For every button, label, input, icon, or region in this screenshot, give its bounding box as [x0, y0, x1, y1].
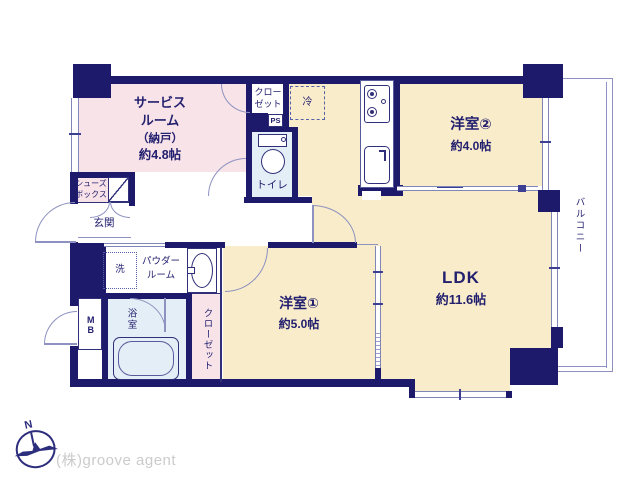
window-western2-right — [542, 98, 549, 190]
slider-western1-pocket — [376, 333, 380, 366]
fridge-label: 冷 — [290, 96, 325, 110]
toilet-label: トイレ — [252, 178, 292, 193]
wall-kitchen-right — [394, 80, 400, 188]
agency-watermark: (株)groove agent — [56, 449, 176, 470]
pillar-right-mid — [538, 190, 560, 212]
slider-western2-stop — [518, 185, 526, 192]
balcony-line-top — [556, 78, 613, 79]
window-service-left-tick — [69, 133, 81, 135]
wall-ps-filler — [252, 113, 268, 127]
washer-label: 洗 — [103, 263, 137, 276]
bath-label: 浴室 — [124, 304, 137, 334]
stove-burner-2-center — [370, 110, 374, 114]
wall-bath-left — [102, 298, 108, 382]
wall-bottom-window-end — [506, 391, 512, 398]
service-room-line1: サービス — [95, 94, 225, 112]
stove-burner-1-center — [370, 92, 374, 96]
bathtub-inner — [118, 341, 174, 376]
slider-western2-ldk — [397, 186, 538, 191]
balcony-line-bottom-inner — [558, 366, 607, 367]
shoebox-line1: シューズ — [72, 179, 110, 190]
balcony-line-right-outer — [612, 78, 613, 372]
ldk-door-leaf — [312, 205, 314, 243]
slider-powder-entry — [104, 243, 165, 247]
slider-western2-overlap — [437, 187, 463, 188]
entrance-label: 玄関 — [84, 216, 124, 231]
closet-lower-label: クローゼット — [200, 300, 213, 378]
entrance-door-arc — [35, 202, 75, 242]
window-ldk-right — [551, 212, 558, 327]
slider-western1-tick2 — [373, 303, 383, 305]
wall-bath-top — [100, 293, 192, 299]
wall-bath-right — [186, 293, 192, 382]
wall-top — [73, 76, 563, 84]
wall-counter-notch — [362, 191, 381, 200]
closet-lower-top-line — [192, 293, 220, 294]
western1-size: 約5.0帖 — [239, 316, 359, 333]
room-ldk-rightstrip — [538, 212, 551, 348]
service-room-line2: ルーム — [95, 112, 225, 130]
western2-label: 洋室② 約4.0帖 — [410, 115, 532, 155]
balcony-line-right-inner — [606, 82, 607, 368]
kitchen-sink — [364, 146, 390, 184]
window-ldk-right-tick — [549, 267, 560, 269]
powder-room-line2: ルーム — [133, 269, 189, 283]
wall-toilet-bottom — [244, 197, 312, 203]
meterbox-door-leaf — [44, 343, 77, 345]
floor-plan: バルコニー — [0, 0, 640, 480]
window-service-left — [71, 98, 79, 172]
wall-closet-lower-right — [220, 247, 222, 382]
entrance-door-leaf — [35, 241, 76, 243]
pillar-top-right — [523, 64, 563, 98]
slider-western1-tick1 — [373, 271, 383, 273]
wall-toilet-right — [292, 127, 298, 203]
compass-north-label: N — [23, 418, 33, 431]
shoebox-label: シューズ ボックス — [72, 179, 110, 201]
powder-room-label: パウダー ルーム — [133, 255, 189, 284]
service-room-size: 約4.8帖 — [95, 147, 225, 165]
closet-upper-line2: ゼット — [249, 99, 287, 111]
shoe-box-cabinet — [108, 177, 129, 202]
balcony-label: バルコニー — [572, 197, 585, 255]
ldk-name: LDK — [395, 266, 527, 290]
kitchen-faucet-stem — [384, 150, 386, 161]
window-ldk-bottom-tick — [459, 389, 461, 400]
ldk-size: 約11.6帖 — [395, 291, 527, 309]
pillar-bottom-right — [510, 348, 558, 385]
western1-label: 洋室① 約5.0帖 — [239, 294, 359, 333]
service-room-label: サービス ルーム （納戸） 約4.8帖 — [95, 94, 225, 165]
western2-name: 洋室② — [410, 115, 532, 136]
service-room-line3: （納戸） — [95, 131, 225, 147]
closet-upper-line1: クロー — [249, 87, 287, 99]
stove-knob — [381, 99, 386, 104]
corridor-wall-ext-line — [357, 244, 378, 245]
shoebox-line2: ボックス — [72, 190, 110, 201]
pillar-top-left — [73, 64, 111, 98]
wall-shoebox-right — [129, 172, 135, 206]
window-western2-tick — [540, 141, 551, 143]
western1-name: 洋室① — [239, 294, 359, 314]
wall-entry-block — [70, 243, 106, 298]
powder-room-line1: パウダー — [133, 255, 189, 269]
wall-divider1-foot — [375, 368, 381, 382]
pillar-right-low — [551, 327, 563, 348]
balcony-line-bottom-outer — [556, 371, 613, 372]
toilet-button — [281, 137, 286, 142]
entrance-agari-line — [73, 237, 131, 238]
meterbox-door-arc — [44, 311, 77, 344]
bath-door-leaf — [164, 298, 166, 332]
meterbox-label: MB — [84, 312, 97, 338]
wall-bottom — [70, 379, 415, 387]
western2-size: 約4.0帖 — [410, 138, 532, 155]
ldk-label: LDK 約11.6帖 — [395, 266, 527, 310]
ps-label: PS — [268, 116, 283, 127]
toilet-bowl — [261, 149, 285, 174]
closet-upper-label: クロー ゼット — [249, 87, 287, 110]
